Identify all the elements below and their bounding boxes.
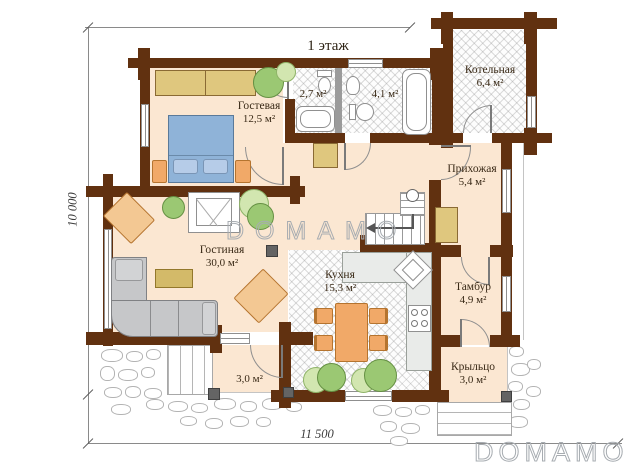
stone <box>101 349 123 362</box>
door-leaf-guest <box>282 147 284 185</box>
stone <box>527 359 541 370</box>
room-name: Прихожая <box>427 162 517 176</box>
room-name: Крыльцо <box>428 360 518 374</box>
page-title: 1 этаж <box>278 38 378 55</box>
wall-hallway-bottom <box>490 245 513 257</box>
stone <box>401 423 420 434</box>
room-area: 12,5 м² <box>214 113 304 127</box>
wardrobe-divider <box>205 70 206 96</box>
stone <box>168 401 188 412</box>
structural-post <box>501 391 512 402</box>
stone <box>395 407 412 417</box>
floor-plan: 10 000 11 500 1 этаж <box>0 0 627 470</box>
room-area: 4,9 м² <box>428 294 518 308</box>
dimension-line-top <box>85 27 410 28</box>
sofa-cushion <box>115 259 143 281</box>
toilet-tank-icon <box>349 104 356 120</box>
stone <box>104 387 122 398</box>
stone <box>141 367 155 378</box>
sofa-cushion <box>202 302 216 335</box>
window-top <box>348 59 383 68</box>
door-leaf-boiler <box>490 105 492 133</box>
burner-icon <box>421 320 428 327</box>
stone <box>126 351 143 362</box>
stone <box>146 399 164 410</box>
stone <box>118 369 138 381</box>
burner-icon <box>421 309 428 316</box>
log-end <box>430 48 443 80</box>
log-end <box>531 18 557 29</box>
room-label-guest: Гостевая 12,5 м² <box>214 99 304 127</box>
coffee-table <box>155 269 193 288</box>
stone <box>240 401 257 412</box>
stone <box>373 405 392 416</box>
stove-icon <box>408 305 431 332</box>
stone <box>144 388 162 399</box>
plant-icon <box>162 196 185 219</box>
toilet-icon <box>356 103 374 121</box>
log-end <box>290 176 300 204</box>
stone <box>205 418 223 429</box>
room-name: Котельная <box>445 63 535 77</box>
room-name: Тамбур <box>428 280 518 294</box>
bed-blanket-line <box>169 155 233 156</box>
room-area: 2,7 м² <box>288 88 338 102</box>
wall-hallway-left <box>429 133 441 145</box>
stone <box>390 436 408 446</box>
window-boiler <box>527 96 536 128</box>
hallway-closet <box>435 207 458 243</box>
log-end <box>128 58 162 68</box>
room-label-terrace: 3,0 м² <box>222 373 277 387</box>
room-label-living: Гостиная 30,0 м² <box>177 243 267 271</box>
stone <box>125 386 141 398</box>
chair <box>314 308 333 324</box>
burner-icon <box>411 320 418 327</box>
stone <box>146 349 161 360</box>
door-leaf-terrace <box>281 345 283 378</box>
window-kitchen <box>345 391 392 401</box>
window-guest <box>141 104 149 147</box>
room-label-hallway: Прихожая 5,4 м² <box>427 162 517 190</box>
structural-post <box>266 245 278 257</box>
nightstand <box>152 160 167 183</box>
porch-steps <box>437 402 512 436</box>
stone <box>100 366 115 381</box>
stone <box>380 421 397 432</box>
watermark-center: DOMAMO <box>226 217 407 246</box>
nightstand <box>235 160 251 183</box>
dimension-line-left <box>88 27 89 444</box>
pillow <box>173 159 198 174</box>
watermark-corner: DOMAMO <box>474 437 627 468</box>
room-area: 3,0 м² <box>222 373 277 387</box>
chair <box>369 308 388 324</box>
wall-bath-bottom <box>285 133 345 143</box>
sofa-seam <box>178 301 179 336</box>
room-label-bath-large: 4,1 м² <box>360 88 410 102</box>
room-area: 4,1 м² <box>360 88 410 102</box>
door-leaf-bath-large <box>344 143 346 170</box>
stone <box>256 417 271 427</box>
log-end <box>431 18 459 29</box>
stone <box>111 404 131 415</box>
stairs-newel-post <box>406 189 419 202</box>
stone <box>415 405 430 415</box>
terrace-steps <box>167 345 213 395</box>
plant-icon <box>364 359 397 392</box>
plant-icon <box>276 62 296 82</box>
plant-icon <box>317 363 346 392</box>
bathtub-inner <box>406 73 427 131</box>
stone <box>191 403 208 413</box>
room-label-boiler: Котельная 6,4 м² <box>445 63 535 91</box>
dimension-label-left: 10 000 <box>66 183 81 237</box>
stone <box>509 346 524 357</box>
window-living-bottom <box>220 333 250 344</box>
wall-vestibule-bottom <box>490 335 520 347</box>
dimension-label-bottom: 11 500 <box>287 427 347 442</box>
log-end <box>421 390 449 402</box>
bathtub-inner <box>300 110 331 128</box>
stone <box>513 399 530 410</box>
burner-icon <box>411 309 418 316</box>
pillow <box>203 159 228 174</box>
door-leaf-porch <box>460 319 462 347</box>
log-end <box>86 186 114 197</box>
room-label-kitchen: Кухня 15,3 м² <box>295 268 385 296</box>
hall-cabinet <box>313 143 338 168</box>
roof-edge-line <box>523 140 524 340</box>
door-leaf-hallway <box>441 145 471 147</box>
structural-post <box>283 387 294 398</box>
stone <box>180 416 197 426</box>
chair <box>369 335 388 351</box>
dining-table <box>335 303 368 362</box>
log-end <box>514 133 552 143</box>
toilet-tank-icon <box>317 70 332 77</box>
stairs-arrow-tail <box>412 214 414 229</box>
stone <box>526 386 541 397</box>
structural-post <box>208 388 220 400</box>
room-area: 6,4 м² <box>445 77 535 91</box>
room-label-bath-small: 2,7 м² <box>288 88 338 102</box>
sofa-seam <box>150 301 151 336</box>
sink-icon <box>346 76 360 95</box>
chair <box>314 335 333 351</box>
room-area: 30,0 м² <box>177 257 267 271</box>
log-end <box>441 118 453 148</box>
stone <box>230 416 249 427</box>
room-area: 5,4 м² <box>427 176 517 190</box>
room-name: Кухня <box>295 268 385 282</box>
room-area: 15,3 м² <box>295 282 385 296</box>
room-area: 3,0 м² <box>428 374 518 388</box>
room-label-vestibule: Тамбур 4,9 м² <box>428 280 518 308</box>
room-label-porch: Крыльцо 3,0 м² <box>428 360 518 388</box>
